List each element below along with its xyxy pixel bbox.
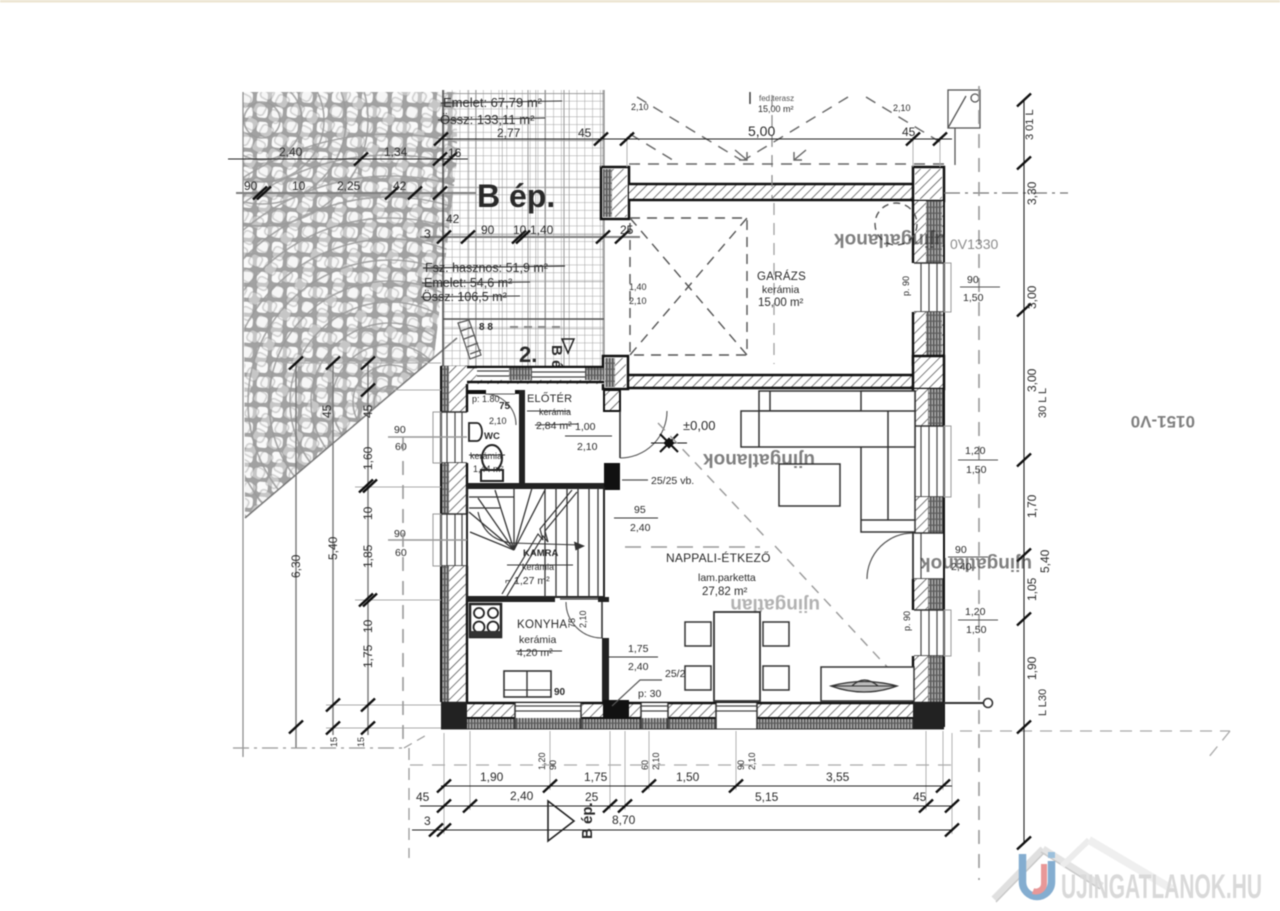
svg-text:2,10: 2,10	[489, 416, 507, 426]
svg-text:5,40: 5,40	[326, 536, 340, 560]
svg-text:ujingatlanok: ujingatlanok	[834, 229, 946, 250]
svg-text:B ép.: B ép.	[579, 802, 596, 839]
svg-text:2,10: 2,10	[651, 752, 661, 770]
svg-text:1,44 m²: 1,44 m²	[473, 464, 504, 474]
svg-text:2,25: 2,25	[337, 179, 361, 193]
svg-text:2,40: 2,40	[628, 661, 649, 673]
svg-text:3: 3	[424, 814, 431, 828]
svg-text:1,05: 1,05	[1025, 577, 1039, 601]
svg-text:p: 30: p: 30	[638, 688, 662, 700]
svg-text:90: 90	[394, 424, 406, 436]
svg-text:42: 42	[446, 212, 460, 226]
svg-text:GARÁZS: GARÁZS	[757, 270, 806, 283]
svg-text:95: 95	[634, 504, 646, 516]
svg-text:2,10: 2,10	[629, 296, 647, 306]
svg-text:kerámia: kerámia	[522, 562, 554, 572]
svg-text:WC: WC	[484, 431, 500, 442]
svg-text:kerámia: kerámia	[762, 284, 800, 296]
svg-text:90: 90	[481, 223, 495, 237]
svg-text:lam.parketta: lam.parketta	[698, 572, 756, 584]
svg-text:ujingatlanok: ujingatlanok	[703, 449, 815, 470]
svg-text:75: 75	[499, 401, 511, 412]
svg-text:fed.terasz: fed.terasz	[759, 94, 794, 103]
svg-text:3: 3	[424, 227, 431, 241]
svg-text:8 8: 8 8	[479, 322, 493, 333]
svg-text:kerámia: kerámia	[519, 634, 557, 646]
svg-text:45: 45	[913, 790, 927, 804]
svg-text:15: 15	[356, 737, 366, 747]
svg-text:1,50: 1,50	[963, 292, 984, 304]
svg-text:10: 10	[361, 619, 375, 633]
svg-text:42: 42	[393, 179, 407, 193]
svg-text:1,75: 1,75	[628, 643, 649, 655]
svg-text:1,85: 1,85	[361, 544, 375, 568]
svg-text:45: 45	[320, 404, 334, 418]
svg-text:B ép.: B ép.	[477, 178, 555, 214]
svg-text:45: 45	[361, 404, 375, 418]
svg-text:p: 1.80: p: 1.80	[472, 394, 500, 404]
svg-text:1,20: 1,20	[537, 752, 547, 770]
svg-text:2,84 m²: 2,84 m²	[536, 420, 572, 432]
svg-text:kerámia: kerámia	[470, 451, 502, 461]
svg-text:1,20: 1,20	[965, 606, 986, 618]
svg-text:±0,00: ±0,00	[683, 418, 715, 433]
svg-text:1,50: 1,50	[966, 624, 987, 636]
svg-text:1,20: 1,20	[965, 445, 986, 457]
svg-text:75: 75	[567, 618, 577, 628]
svg-text:1,40: 1,40	[530, 223, 554, 237]
svg-text:25: 25	[585, 790, 599, 804]
svg-text:90: 90	[548, 760, 558, 770]
svg-text:90: 90	[554, 687, 566, 698]
svg-text:30 L L: 30 L L	[1037, 388, 1049, 418]
svg-text:45: 45	[416, 790, 430, 804]
svg-text:⌐ 1,27 m²: ⌐ 1,27 m²	[505, 575, 550, 587]
svg-text:90: 90	[736, 760, 746, 770]
svg-text:1,75: 1,75	[361, 644, 375, 668]
svg-text:10: 10	[513, 223, 527, 237]
svg-text:1,70: 1,70	[1025, 494, 1039, 518]
svg-text:1,90: 1,90	[480, 770, 504, 784]
svg-text:0151-V0: 0151-V0	[1131, 412, 1195, 431]
svg-text:2,77: 2,77	[497, 126, 521, 140]
svg-text:25: 25	[620, 223, 634, 237]
svg-text:KAMRA: KAMRA	[523, 548, 558, 559]
svg-text:1,40: 1,40	[629, 282, 647, 292]
svg-text:60: 60	[395, 547, 407, 559]
svg-text:2,10: 2,10	[631, 102, 649, 112]
svg-text:1,34: 1,34	[384, 145, 408, 159]
svg-text:1,90: 1,90	[1025, 656, 1039, 680]
svg-text:90: 90	[967, 274, 979, 286]
svg-text:60: 60	[640, 760, 650, 770]
svg-text:p. 90: p. 90	[902, 611, 912, 631]
svg-text:ujingatlan: ujingatlan	[730, 594, 820, 615]
svg-text:ELŐTÉR: ELŐTÉR	[527, 391, 572, 405]
svg-text:2,40: 2,40	[510, 789, 534, 803]
svg-text:10: 10	[292, 179, 306, 193]
svg-text:2,10: 2,10	[893, 103, 911, 113]
svg-text:45: 45	[902, 125, 916, 139]
svg-text:KONYHA: KONYHA	[517, 619, 567, 631]
svg-text:UJINGATLANOK.HU: UJINGATLANOK.HU	[1061, 868, 1262, 906]
svg-text:5,15: 5,15	[755, 790, 779, 804]
svg-text:8,70: 8,70	[612, 813, 636, 827]
svg-text:45: 45	[578, 126, 592, 140]
svg-text:2,10: 2,10	[747, 752, 757, 770]
svg-text:2.: 2.	[519, 342, 537, 367]
svg-text:15,00 m²: 15,00 m²	[758, 297, 804, 309]
svg-text:3,00: 3,00	[1025, 285, 1039, 309]
svg-text:60: 60	[395, 441, 407, 453]
svg-text:10: 10	[361, 506, 375, 520]
svg-text:2,40: 2,40	[630, 522, 651, 534]
svg-text:ujingatlanok: ujingatlanok	[920, 553, 1032, 574]
svg-text:1,50: 1,50	[966, 464, 987, 476]
svg-text:2,10: 2,10	[577, 441, 598, 453]
svg-text:1,60: 1,60	[361, 446, 375, 470]
svg-text:2,40: 2,40	[279, 145, 303, 159]
svg-text:5,40: 5,40	[1038, 549, 1052, 573]
svg-text:90: 90	[394, 528, 406, 540]
svg-text:90: 90	[244, 179, 258, 193]
svg-text:5,00: 5,00	[748, 123, 775, 139]
svg-text:16: 16	[448, 146, 462, 160]
svg-text:1,75: 1,75	[584, 770, 608, 784]
svg-text:6,30: 6,30	[289, 554, 303, 578]
svg-text:15: 15	[329, 737, 339, 747]
svg-text:25/25 vb.: 25/25 vb.	[651, 475, 694, 487]
svg-text:3,55: 3,55	[826, 770, 850, 784]
svg-text:3 01 L: 3 01 L	[1024, 109, 1036, 140]
svg-text:3,30: 3,30	[1025, 181, 1039, 205]
svg-text:L L30: L L30	[1037, 689, 1049, 716]
svg-text:15,00 m²: 15,00 m²	[758, 104, 794, 114]
svg-text:kerámia: kerámia	[539, 407, 571, 417]
svg-text:2,10: 2,10	[578, 610, 588, 628]
svg-text:1,00: 1,00	[575, 421, 596, 433]
svg-text:4,20 m²: 4,20 m²	[517, 647, 553, 659]
svg-text:NAPPALI-ÉTKEZŐ: NAPPALI-ÉTKEZŐ	[666, 550, 771, 565]
svg-text:0V1330: 0V1330	[950, 236, 998, 252]
svg-text:p. 90: p. 90	[901, 276, 911, 296]
svg-text:1,50: 1,50	[676, 770, 700, 784]
